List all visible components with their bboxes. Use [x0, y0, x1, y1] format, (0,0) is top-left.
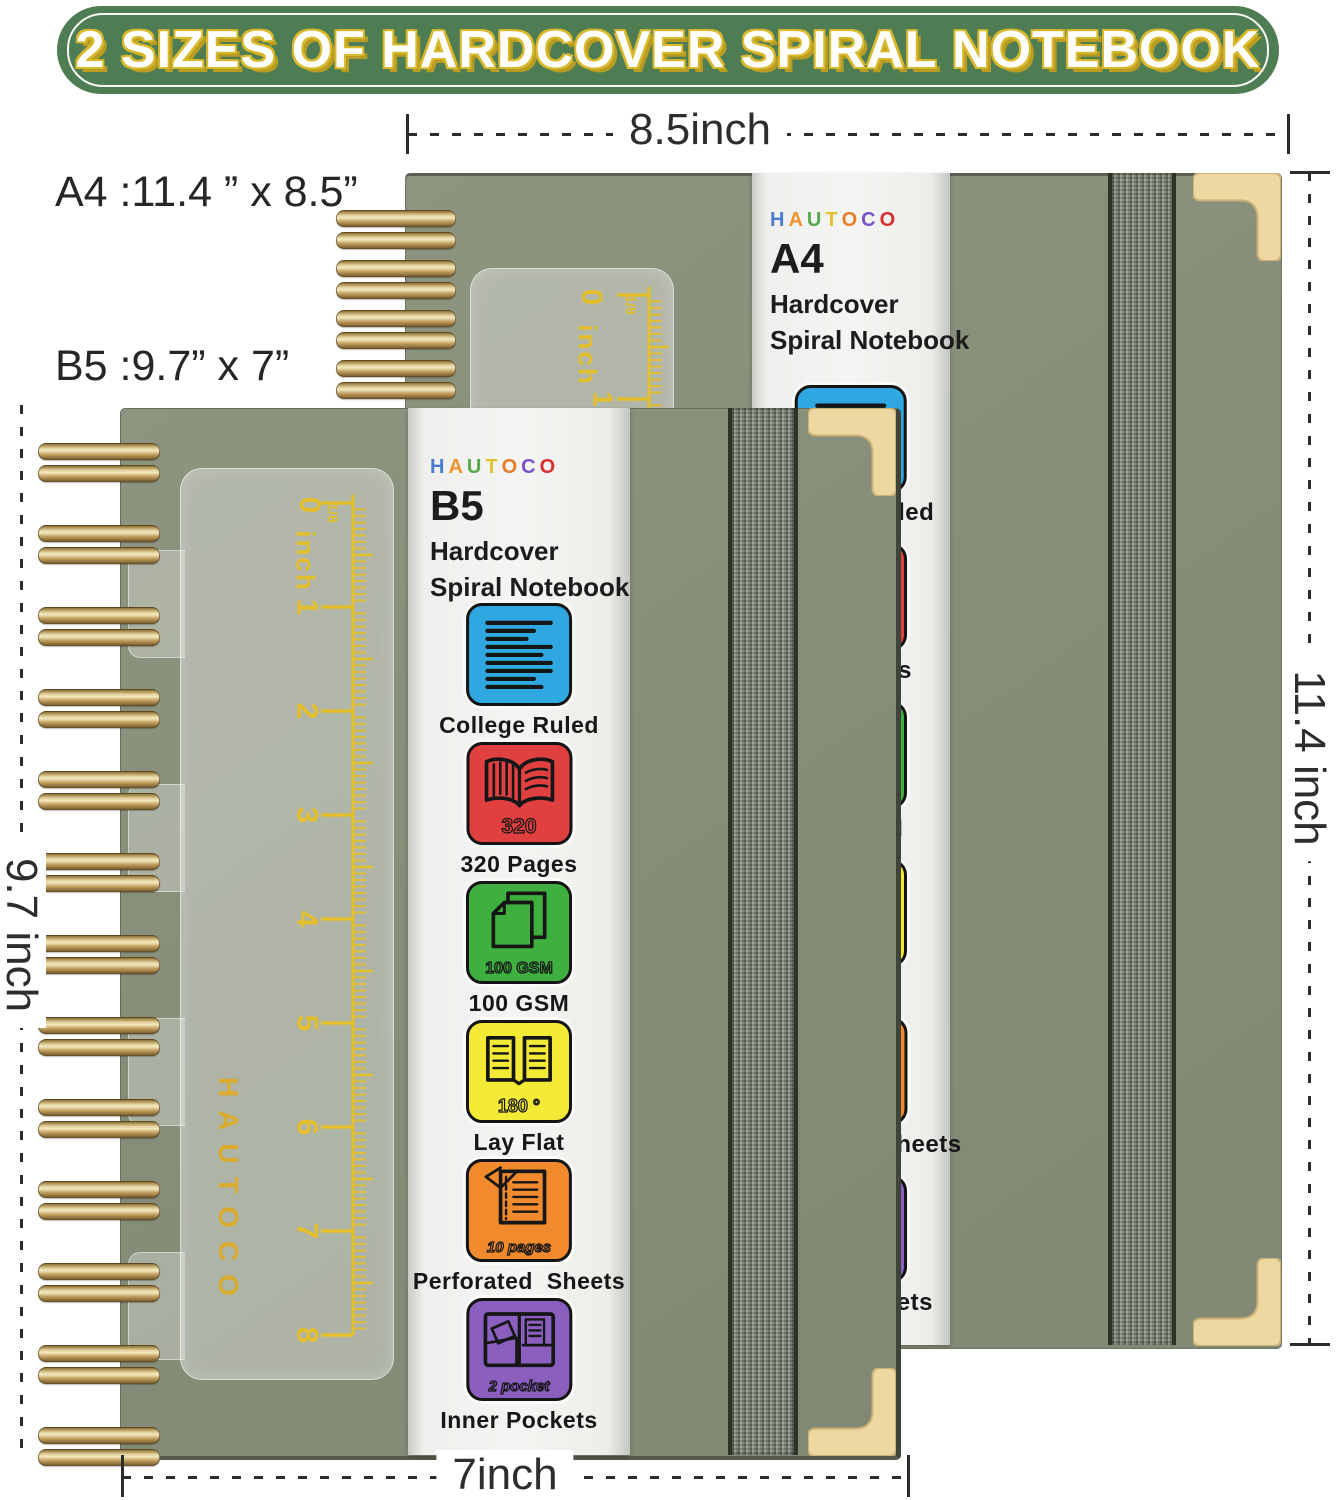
left-dimension-label: 9.7 inch [0, 842, 46, 1028]
bottom-dimension-label: 7inch [436, 1450, 573, 1500]
bottom-dimension-tick-left [121, 1455, 124, 1497]
top-dimension-label: 8.5inch [613, 105, 787, 155]
top-dimension-tick-right [1287, 114, 1290, 154]
right-dimension-tick-bottom [1290, 1343, 1330, 1346]
right-dimension-label: 11.4 inch [1284, 654, 1334, 861]
top-dimension-line [408, 133, 1288, 136]
right-dimension-tick-top [1290, 171, 1330, 174]
dimension-annotations: A4 :11.4 ” x 8.5” B5 :9.7” x 7” 8.5inch … [0, 0, 1337, 1500]
a4-dimensions-label: A4 :11.4 ” x 8.5” [55, 168, 358, 217]
bottom-dimension-tick-right [907, 1455, 910, 1497]
product-image: 2 SIZES OF HARDCOVER SPIRAL NOTEBOOK 1 0… [0, 0, 1337, 1500]
b5-dimensions-label: B5 :9.7” x 7” [55, 342, 289, 391]
top-dimension-tick-left [406, 114, 409, 154]
